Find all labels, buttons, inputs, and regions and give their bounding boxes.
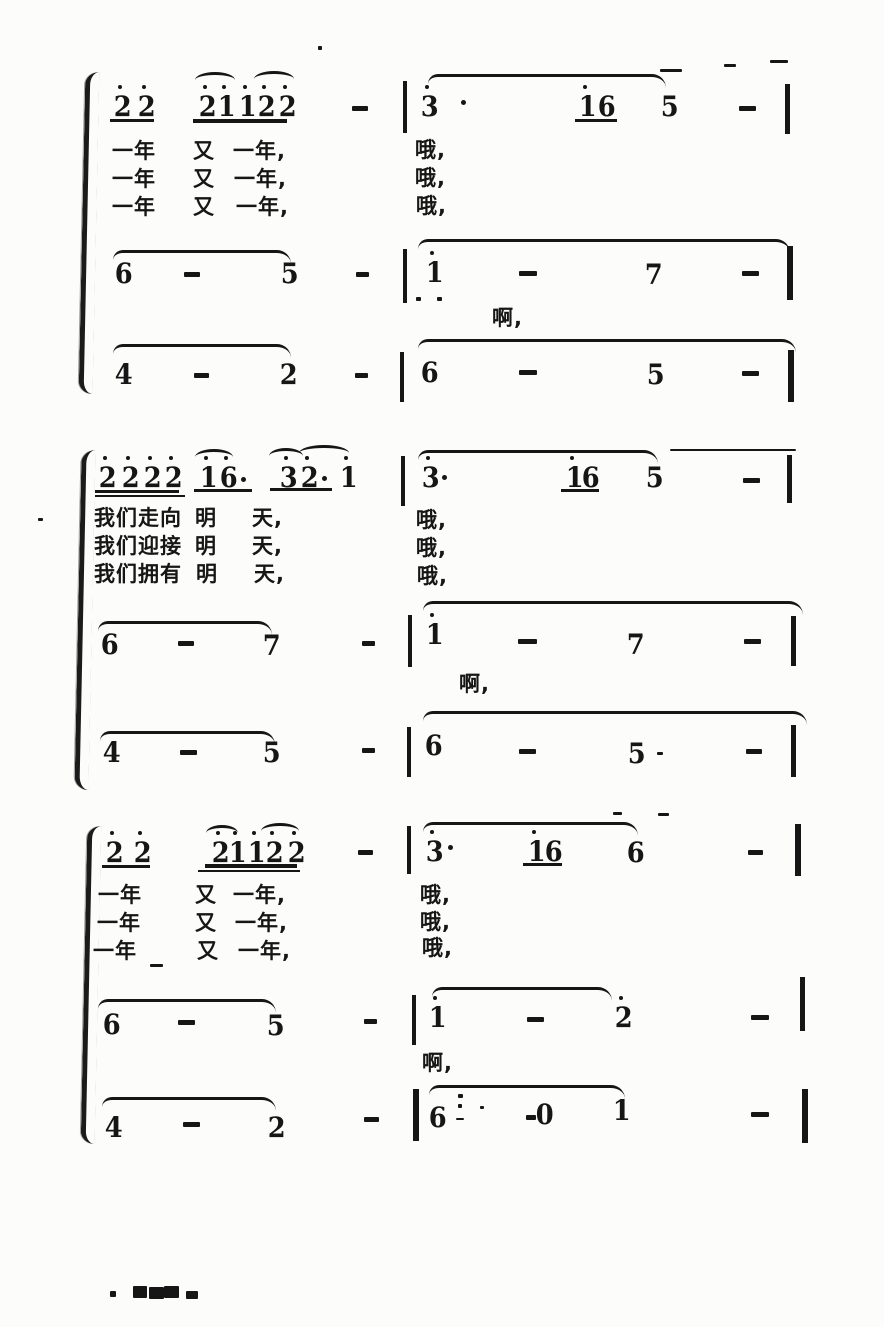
barline	[400, 352, 404, 402]
barline	[403, 249, 407, 303]
octave-dot	[570, 456, 574, 460]
glyph-text: 一年	[112, 139, 156, 163]
ink-speck	[670, 449, 796, 451]
ink-speck	[658, 813, 669, 816]
note-digit: 6	[114, 260, 133, 288]
ink-speck	[480, 1106, 484, 1109]
glyph-text: 一年,	[235, 911, 288, 935]
beam-underline	[95, 490, 179, 493]
tie-arc	[195, 72, 235, 88]
duration-dash	[744, 639, 761, 644]
duration-dash	[364, 1019, 377, 1024]
glyph-text: 哦,	[417, 564, 448, 588]
note-digit: 1	[339, 464, 358, 492]
glyph-text: 明	[196, 562, 218, 586]
duration-dash	[362, 748, 375, 753]
octave-dot	[425, 85, 429, 89]
glyph-text: 一年	[112, 195, 156, 219]
glyph-text: 4	[115, 361, 133, 389]
lyric-text: 哦,	[415, 168, 446, 189]
ink-speck	[133, 1286, 147, 1298]
lyric-text: 一年	[112, 197, 156, 218]
slur	[418, 339, 796, 354]
note-digit: 7	[262, 632, 281, 660]
glyph-text: 5	[647, 361, 665, 389]
glyph-text: 天,	[254, 562, 285, 586]
note-digit: 2	[113, 93, 132, 121]
glyph-text: 1	[340, 464, 358, 492]
glyph-text: 一年,	[236, 195, 289, 219]
glyph-text: 6	[101, 631, 119, 659]
glyph-text: 我们走向	[94, 506, 182, 530]
octave-dot	[243, 85, 247, 89]
duration-dash	[352, 106, 368, 111]
lyric-text: 一年,	[234, 169, 287, 190]
duration-dash	[748, 850, 763, 855]
beam-underline	[194, 489, 252, 492]
glyph-text: 又	[195, 883, 217, 907]
glyph-text: 明	[195, 506, 217, 530]
lyric-text: 明	[195, 536, 217, 557]
glyph-text: 2	[280, 361, 298, 389]
glyph-text: 2	[144, 464, 162, 492]
glyph-text: 6	[429, 1104, 447, 1132]
glyph-text: 一年	[98, 883, 142, 907]
lyric-text: 又	[195, 913, 217, 934]
note-digit: 1	[217, 93, 236, 121]
lyric-text: 我们拥有	[94, 564, 182, 585]
lyric-text: 哦,	[420, 912, 451, 933]
note-digit: 1	[199, 464, 218, 492]
duration-dash	[355, 373, 368, 378]
duration-dash	[751, 1112, 769, 1117]
duration-dash	[751, 1015, 769, 1020]
glyph-text: 2	[165, 464, 183, 492]
barline	[791, 725, 796, 777]
lyric-text: 一年,	[235, 913, 288, 934]
note-digit: 2	[137, 93, 156, 121]
lyric-text: 又	[193, 169, 215, 190]
glyph-text: 5	[263, 739, 281, 767]
glyph-text: 1	[200, 464, 218, 492]
octave-dot	[252, 831, 256, 835]
octave-dot	[619, 996, 623, 1000]
octave-dot	[118, 85, 122, 89]
octave-dot	[148, 456, 152, 460]
glyph-text: 一年,	[233, 139, 286, 163]
note-digit: 2	[98, 464, 117, 492]
lyric-text: 哦,	[416, 196, 447, 217]
note-digit: 2	[121, 464, 140, 492]
ink-speck	[150, 964, 163, 967]
note-digit: 2	[279, 361, 298, 389]
duration-dash	[527, 1017, 544, 1022]
note-digit: 2	[278, 93, 297, 121]
augmentation-dot	[442, 475, 447, 480]
system-brace	[74, 450, 95, 790]
duration-dash	[183, 1122, 200, 1127]
glyph-text: 6	[103, 1011, 121, 1039]
barline	[412, 995, 416, 1045]
note-digit: 5	[266, 1012, 285, 1040]
note-digit: 3	[421, 464, 440, 492]
glyph-text: 2	[99, 464, 117, 492]
glyph-text: 6	[425, 732, 443, 760]
octave-dot	[283, 85, 287, 89]
glyph-text: 1	[429, 1004, 447, 1032]
glyph-text: 1	[218, 93, 236, 121]
duration-dash	[743, 478, 760, 483]
octave-dot	[103, 456, 107, 460]
duration-dash	[742, 371, 759, 376]
barline	[408, 615, 412, 667]
glyph-text: 1	[229, 839, 247, 867]
octave-dot	[284, 456, 288, 460]
glyph-text: 又	[193, 167, 215, 191]
glyph-text: 我们拥有	[94, 562, 182, 586]
duration-dash	[518, 639, 537, 644]
slur	[423, 601, 803, 616]
slur	[428, 74, 666, 89]
duration-dash	[519, 271, 537, 276]
glyph-text: 6	[421, 359, 439, 387]
octave-dot	[430, 613, 434, 617]
glyph-text: 5	[628, 740, 646, 768]
duration-dash	[742, 271, 759, 276]
glyph-text: 4	[103, 739, 121, 767]
barline	[788, 350, 794, 402]
barline	[791, 616, 796, 666]
glyph-text: 5	[646, 464, 664, 492]
beam-underline	[575, 119, 617, 122]
glyph-text: 又	[193, 139, 215, 163]
note-digit: 6	[626, 839, 645, 867]
glyph-text: 2	[138, 93, 156, 121]
barline	[401, 456, 405, 506]
glyph-text: 2	[288, 839, 306, 867]
glyph-text: 2	[122, 464, 140, 492]
slur	[100, 731, 275, 746]
lyric-text: 我们走向	[94, 508, 182, 529]
slur	[113, 344, 291, 359]
lyric-text: 哦,	[415, 140, 446, 161]
octave-dot	[224, 456, 228, 460]
lyric-text: 天,	[252, 536, 283, 557]
barline	[785, 84, 790, 134]
note-digit: 6	[102, 1011, 121, 1039]
lyric-text: 又	[195, 885, 217, 906]
beam-underline	[205, 864, 297, 868]
lyric-text: 天,	[252, 508, 283, 529]
octave-dot	[222, 85, 226, 89]
note-digit: 1	[428, 1004, 447, 1032]
augmentation-dot	[322, 476, 327, 481]
glyph-text: 2	[134, 839, 152, 867]
ink-speck	[437, 297, 442, 301]
glyph-text: 1	[239, 93, 257, 121]
note-digit: 2	[287, 839, 306, 867]
octave-dot	[430, 251, 434, 255]
duration-dash	[362, 641, 375, 646]
octave-dot	[110, 831, 114, 835]
glyph-text: 3	[422, 464, 440, 492]
glyph-text: 又	[197, 939, 219, 963]
note-digit: 2	[133, 839, 152, 867]
ink-speck	[149, 1287, 164, 1299]
octave-dot	[583, 85, 587, 89]
lyric-text: 又	[197, 941, 219, 962]
barline	[403, 81, 407, 133]
glyph-text: 哦,	[415, 166, 446, 190]
glyph-text: 一年	[97, 911, 141, 935]
beam-underline	[523, 863, 562, 866]
duration-dash	[180, 750, 197, 755]
tie-arc	[254, 71, 294, 87]
lyric-text: 一年	[97, 913, 141, 934]
glyph-text: 2	[615, 1004, 633, 1032]
ink-speck	[458, 1094, 463, 1098]
glyph-text: 2	[268, 1114, 286, 1142]
glyph-text: 哦,	[415, 138, 446, 162]
barline	[407, 727, 411, 777]
note-digit: 5	[646, 361, 665, 389]
octave-dot	[262, 85, 266, 89]
glyph-text: 啊,	[459, 672, 490, 696]
glyph-text: 5	[281, 260, 299, 288]
lyric-text: 我们迎接	[94, 536, 182, 557]
lyric-text: 哦,	[416, 538, 447, 559]
lyric-text: 啊,	[459, 674, 490, 695]
glyph-text: 啊,	[492, 306, 523, 330]
ink-speck	[110, 1291, 116, 1297]
lyric-text: 又	[193, 141, 215, 162]
note-digit: 2	[267, 1114, 286, 1142]
note-digit: 1	[228, 839, 247, 867]
glyph-text: 一年	[93, 939, 137, 963]
note-digit: 2	[105, 839, 124, 867]
slur	[418, 239, 790, 254]
duration-dash	[356, 272, 369, 277]
octave-dot	[532, 830, 536, 834]
note-digit: 1	[238, 93, 257, 121]
glyph-text: 1	[426, 621, 444, 649]
glyph-text: 1	[426, 259, 444, 287]
glyph-text: 7	[263, 632, 281, 660]
note-digit: 2	[265, 839, 284, 867]
ink-speck	[724, 64, 736, 67]
glyph-text: 6	[598, 93, 616, 121]
note-digit: 1	[425, 621, 444, 649]
glyph-text: 6	[115, 260, 133, 288]
ink-speck	[416, 297, 421, 301]
lyric-text: 哦,	[422, 938, 453, 959]
glyph-text: 4	[105, 1114, 123, 1142]
lyric-text: 哦,	[417, 566, 448, 587]
glyph-text: 0	[536, 1101, 554, 1129]
slur	[98, 999, 276, 1014]
glyph-text: 哦,	[416, 536, 447, 560]
slur	[98, 621, 272, 636]
duration-dash	[519, 749, 536, 754]
beam-underline	[270, 488, 332, 491]
glyph-text: 6	[627, 839, 645, 867]
duration-dash	[184, 272, 200, 277]
ink-speck	[458, 1104, 462, 1108]
duration-dash	[364, 1117, 379, 1122]
glyph-text: 哦,	[420, 883, 451, 907]
ink-speck	[770, 60, 788, 63]
slur	[113, 250, 291, 265]
ink-speck	[657, 752, 663, 755]
lyric-text: 明	[195, 508, 217, 529]
octave-dot	[233, 831, 237, 835]
octave-dot	[216, 831, 220, 835]
barline	[407, 826, 411, 874]
glyph-text: 明	[195, 534, 217, 558]
octave-dot	[344, 456, 348, 460]
note-digit: 6	[428, 1104, 447, 1132]
glyph-text: 2	[258, 93, 276, 121]
glyph-text: 又	[195, 911, 217, 935]
slur	[102, 1097, 276, 1112]
scanned-score-page: 22211223165一年又一年,哦,一年又一年,哦,一年又一年,哦,6517啊…	[0, 0, 884, 1327]
note-digit: 3	[420, 93, 439, 121]
ink-speck	[318, 46, 322, 50]
lyric-text: 一年,	[238, 941, 291, 962]
glyph-text: 一年,	[238, 939, 291, 963]
glyph-text: 一年,	[233, 883, 286, 907]
ink-speck	[613, 812, 622, 815]
octave-dot	[126, 456, 130, 460]
glyph-text: 哦,	[422, 936, 453, 960]
glyph-text: 3	[426, 838, 444, 866]
glyph-text: 2	[199, 93, 217, 121]
glyph-text: 2	[114, 93, 132, 121]
augmentation-dot	[448, 845, 453, 850]
glyph-text: 一年	[112, 167, 156, 191]
note-digit: 4	[114, 361, 133, 389]
note-digit: 6	[544, 838, 563, 866]
note-digit: 6	[581, 464, 600, 492]
note-digit: 1	[425, 259, 444, 287]
glyph-text: 6	[582, 464, 600, 492]
barline	[787, 455, 792, 503]
note-digit: 2	[198, 93, 217, 121]
glyph-text: 2	[266, 839, 284, 867]
octave-dot	[270, 831, 274, 835]
glyph-text: 哦,	[416, 194, 447, 218]
lyric-text: 一年,	[236, 197, 289, 218]
note-digit: 0	[535, 1101, 554, 1129]
glyph-text: 哦,	[420, 910, 451, 934]
glyph-text: 7	[627, 631, 645, 659]
note-digit: 6	[424, 732, 443, 760]
lyric-text: 天,	[254, 564, 285, 585]
glyph-text: 7	[645, 261, 663, 289]
slur	[423, 711, 807, 726]
glyph-text: 天,	[252, 534, 283, 558]
lyric-text: 一年,	[233, 141, 286, 162]
barline	[787, 246, 793, 300]
glyph-text: 哦,	[416, 508, 447, 532]
glyph-text: 啊,	[422, 1051, 453, 1075]
note-digit: 2	[614, 1004, 633, 1032]
lyric-text: 一年	[98, 885, 142, 906]
glyph-text: 6	[545, 838, 563, 866]
lyric-text: 一年	[112, 169, 156, 190]
note-digit: 3	[425, 838, 444, 866]
lyric-text: 哦,	[416, 510, 447, 531]
octave-dot	[433, 996, 437, 1000]
lyric-text: 明	[196, 564, 218, 585]
slur	[432, 987, 612, 1002]
glyph-text: 6	[220, 464, 238, 492]
duration-dash	[519, 370, 537, 375]
lyric-text: 又	[193, 197, 215, 218]
glyph-text: 天,	[252, 506, 283, 530]
duration-dash	[358, 850, 373, 855]
note-digit: 7	[626, 631, 645, 659]
note-digit: 1	[578, 93, 597, 121]
note-digit: 1	[247, 839, 266, 867]
note-digit: 4	[104, 1114, 123, 1142]
note-digit: 5	[280, 260, 299, 288]
system-brace	[79, 72, 100, 394]
octave-dot	[204, 456, 208, 460]
octave-dot	[305, 456, 309, 460]
augmentation-dot	[241, 477, 246, 482]
note-digit: 6	[597, 93, 616, 121]
note-digit: 5	[627, 740, 646, 768]
note-digit: 6	[420, 359, 439, 387]
note-digit: 2	[164, 464, 183, 492]
glyph-text: 2	[279, 93, 297, 121]
note-digit: 6	[219, 464, 238, 492]
duration-dash	[739, 106, 756, 111]
octave-dot	[138, 831, 142, 835]
barline	[795, 824, 801, 876]
glyph-text: 1	[613, 1097, 631, 1125]
beam-underline	[102, 865, 150, 868]
ink-speck	[660, 69, 682, 72]
barline	[802, 1089, 808, 1143]
ink-speck	[38, 518, 43, 521]
lyric-text: 哦,	[420, 885, 451, 906]
note-digit: 1	[612, 1097, 631, 1125]
ink-speck	[186, 1291, 198, 1299]
duration-dash	[746, 749, 762, 754]
beam-underline	[561, 489, 599, 492]
duration-dash	[178, 1020, 195, 1025]
note-digit: 7	[644, 261, 663, 289]
augmentation-dot	[461, 100, 466, 105]
beam-underline	[95, 495, 185, 497]
duration-dash	[194, 373, 209, 378]
barline	[800, 977, 805, 1031]
lyric-text: 啊,	[422, 1053, 453, 1074]
octave-dot	[169, 456, 173, 460]
octave-dot	[142, 85, 146, 89]
octave-dot	[203, 85, 207, 89]
glyph-text: 5	[267, 1012, 285, 1040]
lyric-text: 啊,	[492, 308, 523, 329]
glyph-text: 一年,	[234, 167, 287, 191]
beam-underline	[198, 870, 300, 872]
duration-dash	[178, 641, 194, 646]
beam-underline	[110, 119, 154, 122]
ink-speck	[164, 1286, 179, 1298]
glyph-text: 3	[421, 93, 439, 121]
